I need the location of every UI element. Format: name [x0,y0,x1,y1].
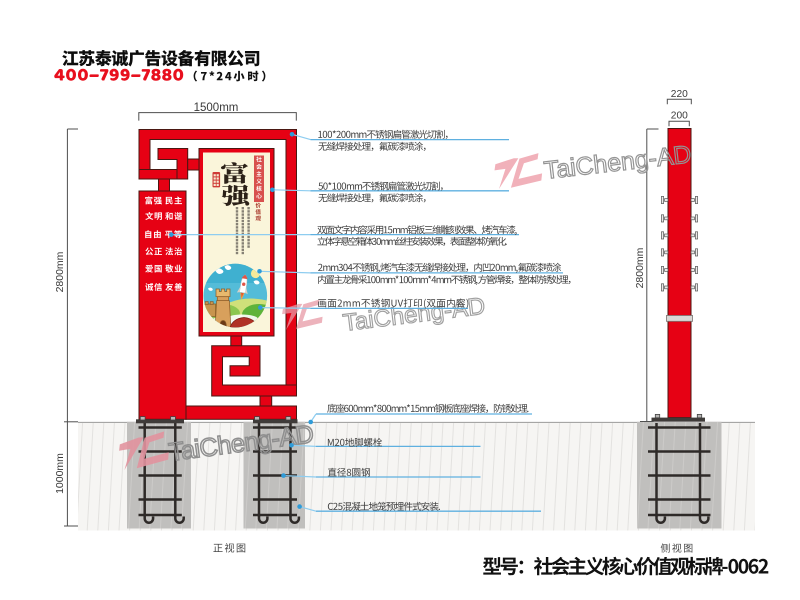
svg-text:1000mm: 1000mm [54,453,66,494]
svg-text:200: 200 [671,111,688,122]
svg-text:220: 220 [671,89,688,100]
svg-text:1500mm: 1500mm [194,102,239,114]
svg-text:2800mm: 2800mm [634,247,646,288]
svg-text:2800mm: 2800mm [54,251,66,292]
